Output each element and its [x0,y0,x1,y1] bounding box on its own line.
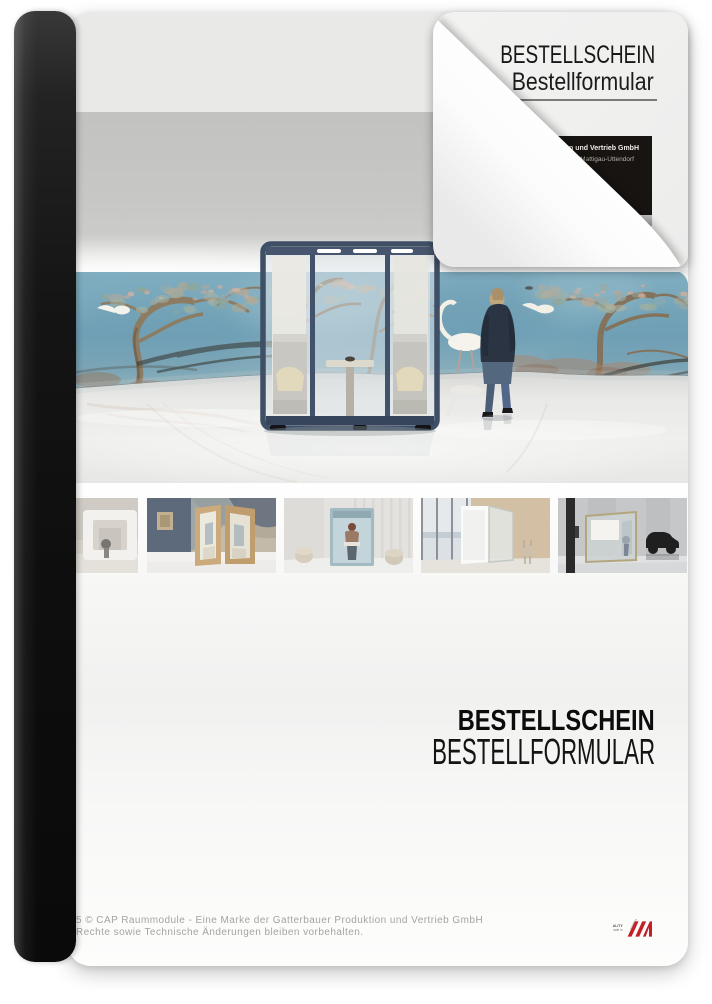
svg-text:made in: made in [613,928,623,932]
